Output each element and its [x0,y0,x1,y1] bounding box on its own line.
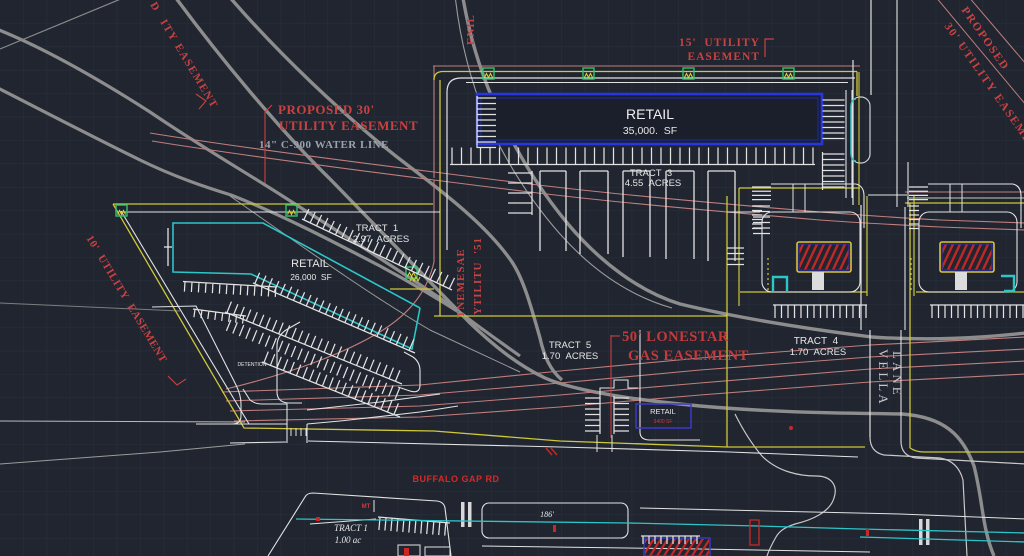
svg-text:TRACT 1: TRACT 1 [356,223,398,234]
svg-text:2.97 ACRES: 2.97 ACRES [353,234,410,245]
svg-text:50' LONESTAR: 50' LONESTAR [622,329,729,345]
svg-text:TRACT 5: TRACT 5 [549,340,591,351]
svg-text:35,000. SF: 35,000. SF [623,125,677,137]
svg-text:GAS EASEMENT: GAS EASEMENT [628,348,749,364]
svg-text:LANE: LANE [890,351,905,398]
svg-text:TNEMESAE: TNEMESAE [455,248,467,318]
svg-text:RETAIL: RETAIL [650,407,676,416]
svg-text:15' UTILITY: 15' UTILITY [679,37,760,49]
svg-text:14" C-900 WATER LINE: 14" C-900 WATER LINE [259,139,389,151]
svg-text:PROPOSED 30': PROPOSED 30' [278,102,375,117]
svg-text:MT: MT [362,504,371,510]
svg-text:EASEMENT: EASEMENT [687,51,760,63]
svg-text:VELLA: VELLA [876,349,891,407]
svg-text:1.00 ac: 1.00 ac [335,535,362,545]
svg-text:ENIL: ENIL [465,14,477,45]
svg-text:3400 SF: 3400 SF [654,419,673,425]
svg-text:26,000 SF: 26,000 SF [290,272,332,282]
svg-text:4.55 ACRES: 4.55 ACRES [625,178,682,189]
svg-text:BUFFALO GAP RD: BUFFALO GAP RD [413,474,500,484]
svg-text:1.70 ACRES: 1.70 ACRES [542,351,599,362]
svg-text:1.70 ACRES: 1.70 ACRES [790,347,847,358]
svg-text:186': 186' [540,510,554,519]
svg-text:DETENTION: DETENTION [238,362,267,368]
svg-text:TRACT 4: TRACT 4 [794,336,839,347]
svg-text:RETAIL: RETAIL [291,258,329,270]
svg-text:TRACT 1: TRACT 1 [334,523,368,533]
svg-text:RETAIL: RETAIL [626,106,674,122]
svg-text:UTILITY EASEMENT: UTILITY EASEMENT [279,118,418,133]
svg-text:YTILITU '51: YTILITU '51 [472,237,484,315]
